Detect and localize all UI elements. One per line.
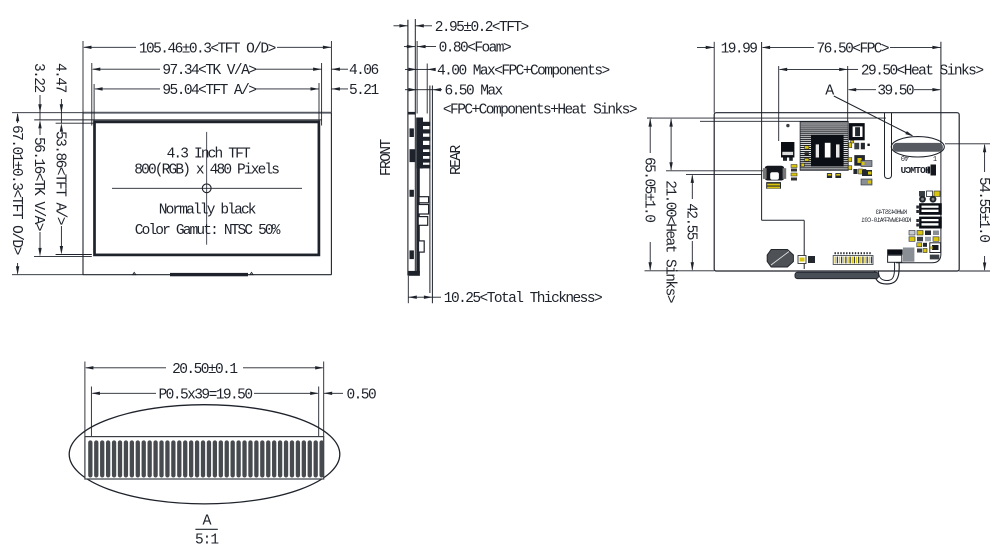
svg-text:105.46±0.3<TFT O/D>: 105.46±0.3<TFT O/D> — [139, 41, 276, 57]
svg-text:KWH043ST43: KWH043ST43 — [875, 209, 907, 216]
svg-text:4.00 Max<FPC+Components>: 4.00 Max<FPC+Components> — [437, 63, 609, 79]
svg-text:1: 1 — [933, 156, 937, 164]
svg-text:5:1: 5:1 — [195, 533, 218, 549]
svg-text:4.3 Inch TFT: 4.3 Inch TFT — [167, 147, 251, 163]
svg-text:19.99: 19.99 — [721, 41, 758, 57]
svg-text:10.25<Total Thickness>: 10.25<Total Thickness> — [444, 291, 602, 307]
svg-text:39.50: 39.50 — [877, 84, 914, 100]
svg-text:Normally black: Normally black — [159, 202, 256, 218]
svg-text:97.34<TK V/A>: 97.34<TK V/A> — [162, 63, 256, 79]
svg-text:P0.5x39=19.50: P0.5x39=19.50 — [159, 387, 253, 403]
svg-text:76.50<FPC>: 76.50<FPC> — [817, 41, 889, 57]
svg-text:800(RGB) x 480 Pixels: 800(RGB) x 480 Pixels — [134, 163, 279, 179]
svg-text:KD043WVFPA10-C01: KD043WVFPA10-C01 — [861, 217, 912, 224]
svg-text:40: 40 — [901, 153, 909, 161]
svg-text:4.06: 4.06 — [349, 63, 378, 79]
svg-text:0.80<Foam>: 0.80<Foam> — [439, 41, 511, 57]
svg-text:67.01±0.3<TFT O/D>: 67.01±0.3<TFT O/D> — [8, 125, 24, 255]
svg-text:HOTMCU: HOTMCU — [900, 165, 931, 176]
svg-text:65.05±1.0: 65.05±1.0 — [640, 157, 656, 222]
svg-text:95.04<TFT A/>: 95.04<TFT A/> — [162, 83, 256, 99]
svg-text:<FPC+Components+Heat Sinks>: <FPC+Components+Heat Sinks> — [443, 102, 637, 118]
svg-text:6.50 Max: 6.50 Max — [445, 84, 504, 100]
svg-text:5.21: 5.21 — [349, 83, 378, 99]
svg-text:2.95±0.2<TFT>: 2.95±0.2<TFT> — [435, 20, 529, 36]
svg-text:20.50±0.1: 20.50±0.1 — [172, 362, 237, 378]
svg-text:42.55: 42.55 — [683, 203, 699, 240]
svg-text:A: A — [202, 513, 211, 530]
svg-text:REAR: REAR — [449, 145, 465, 175]
svg-text:0.50: 0.50 — [347, 387, 376, 403]
svg-text:53.86<TFT A/>: 53.86<TFT A/> — [52, 131, 68, 225]
svg-text:21.00<Heat Sinks>: 21.00<Heat Sinks> — [661, 180, 677, 302]
svg-text:FRONT: FRONT — [379, 138, 395, 176]
svg-text:56.16<TK V/A>: 56.16<TK V/A> — [30, 137, 46, 231]
svg-text:54.55±1.0: 54.55±1.0 — [975, 177, 991, 242]
svg-text:29.50<Heat Sinks>: 29.50<Heat Sinks> — [861, 63, 983, 79]
svg-text:Color Gamut: NTSC 50%: Color Gamut: NTSC 50% — [135, 223, 281, 239]
svg-text:3.22: 3.22 — [30, 63, 46, 92]
svg-text:4.47: 4.47 — [52, 63, 68, 92]
